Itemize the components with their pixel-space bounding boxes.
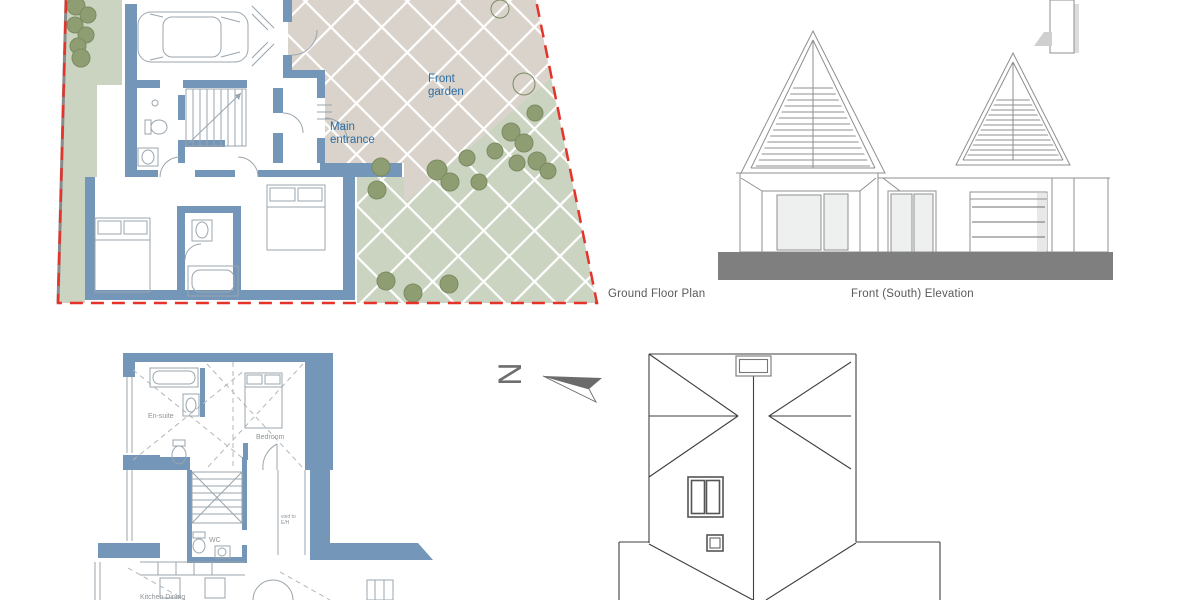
roof-plan-drawing <box>615 340 945 600</box>
north-arrow: N <box>480 350 610 410</box>
bedroom-label: Bedroom <box>256 434 285 441</box>
ground-line-bar <box>718 252 1113 280</box>
rooflights <box>688 477 723 551</box>
roof-chimney <box>736 356 771 376</box>
drawing-sheet: Front garden Main entrance <box>0 0 1200 600</box>
ground-floor-plan-caption: Ground Floor Plan <box>608 288 705 300</box>
main-entrance-label-line1: Main <box>330 121 355 133</box>
chimney <box>1034 0 1079 53</box>
first-floor-plan-drawing: En-suite Bedroom WC void to E/H Kitchen … <box>85 340 465 600</box>
first-floor-fixtures <box>140 368 393 600</box>
wc-label: WC <box>209 537 221 544</box>
ground-floor-plan-drawing: Front garden Main entrance <box>0 0 620 315</box>
kitchen-dining-label: Kitchen Dining <box>140 594 185 600</box>
right-gable <box>956 53 1070 165</box>
ensuite-label: En-suite <box>148 413 174 420</box>
roof-outline <box>619 354 940 600</box>
front-elevation-drawing <box>700 0 1130 290</box>
void-label-line2: E/H <box>281 520 290 526</box>
north-letter: N <box>492 362 528 385</box>
front-elevation-caption: Front (South) Elevation <box>851 288 974 300</box>
main-entrance-label-line2: entrance <box>330 134 375 146</box>
roof-hips-ridge <box>649 354 856 600</box>
first-floor-windows <box>95 377 132 600</box>
front-garden-label-line2: garden <box>428 86 464 98</box>
front-garden-label-line1: Front <box>428 73 456 85</box>
left-gable <box>741 31 885 173</box>
first-floor-staircase <box>192 472 242 523</box>
